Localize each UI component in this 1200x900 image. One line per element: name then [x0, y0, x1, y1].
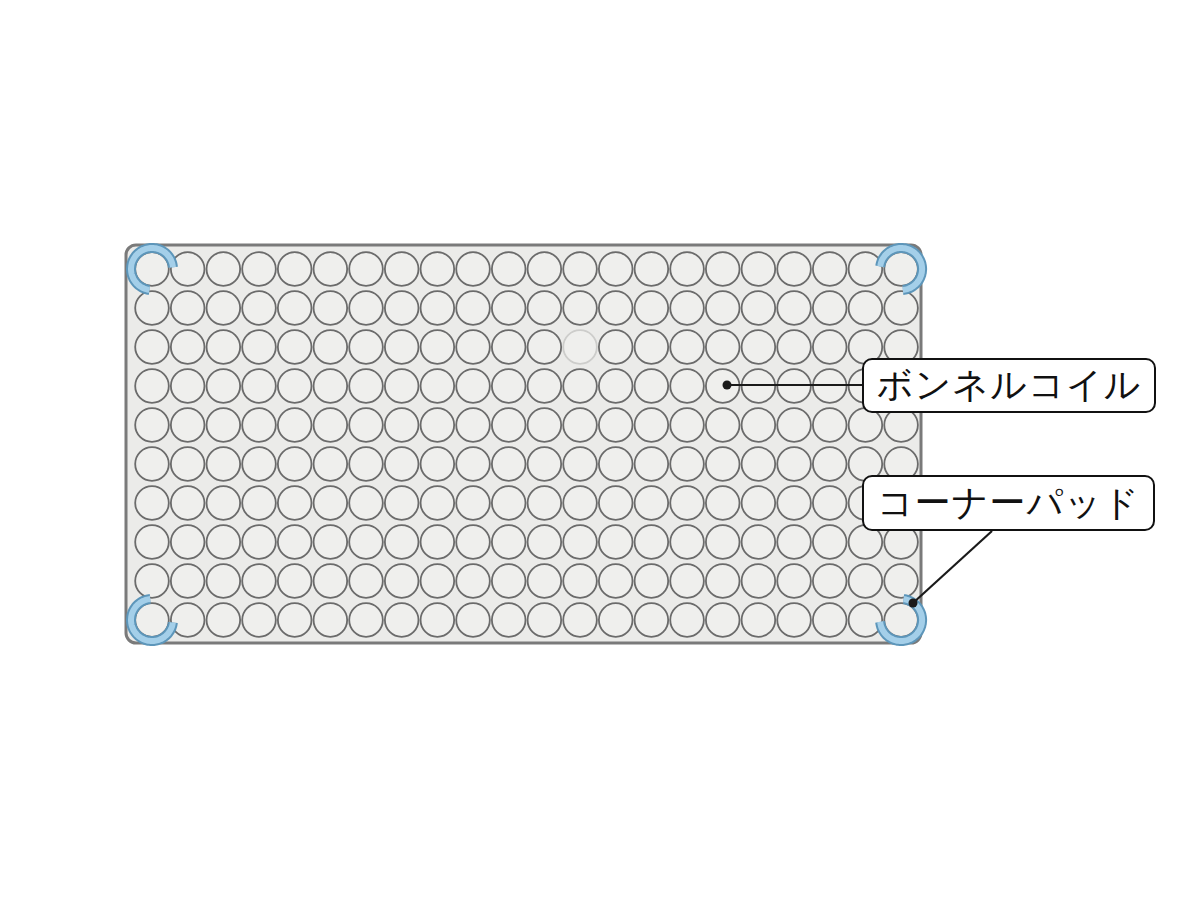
coil	[385, 369, 419, 403]
coil	[385, 408, 419, 442]
coil	[492, 252, 526, 286]
coil	[278, 564, 312, 598]
coil	[742, 369, 776, 403]
coil	[349, 330, 383, 364]
coil	[456, 369, 490, 403]
coil	[135, 291, 169, 325]
coil-faded	[563, 330, 597, 364]
coil	[314, 486, 348, 520]
coil	[635, 291, 669, 325]
coil	[349, 408, 383, 442]
coil	[599, 252, 633, 286]
coil	[385, 447, 419, 481]
coil	[635, 564, 669, 598]
coil	[135, 564, 169, 598]
coil	[813, 330, 847, 364]
coil	[599, 525, 633, 559]
coil	[421, 486, 455, 520]
coil	[171, 408, 205, 442]
coil	[456, 330, 490, 364]
coil	[599, 564, 633, 598]
coil	[777, 486, 811, 520]
coil	[171, 525, 205, 559]
coil	[314, 252, 348, 286]
coil	[742, 408, 776, 442]
coil	[670, 525, 704, 559]
coil	[171, 252, 205, 286]
coil	[635, 603, 669, 637]
coil	[278, 291, 312, 325]
coil	[777, 525, 811, 559]
coil	[884, 291, 918, 325]
coil	[314, 447, 348, 481]
coil	[670, 603, 704, 637]
coil	[135, 447, 169, 481]
coil	[528, 603, 562, 637]
coil	[456, 447, 490, 481]
coil	[456, 486, 490, 520]
coil	[670, 564, 704, 598]
coil	[599, 603, 633, 637]
coil	[207, 291, 241, 325]
coil	[421, 330, 455, 364]
coil	[635, 369, 669, 403]
coil	[813, 603, 847, 637]
coil	[563, 447, 597, 481]
coil	[421, 564, 455, 598]
coil	[421, 525, 455, 559]
coil	[492, 291, 526, 325]
coil	[599, 486, 633, 520]
mattress-coil-diagram	[0, 0, 1200, 900]
coil	[171, 603, 205, 637]
coil	[349, 525, 383, 559]
coil	[207, 330, 241, 364]
coil	[742, 525, 776, 559]
coil	[849, 291, 883, 325]
coil	[777, 369, 811, 403]
coil	[706, 486, 740, 520]
coil	[670, 447, 704, 481]
label-bonnell-coil: ボンネルコイル	[862, 358, 1156, 413]
coil	[742, 603, 776, 637]
coil	[528, 447, 562, 481]
coil	[242, 252, 276, 286]
coil	[171, 330, 205, 364]
coil	[278, 525, 312, 559]
coil	[242, 330, 276, 364]
coil	[670, 252, 704, 286]
label-corner-pad: コーナーパッド	[862, 475, 1155, 531]
coil	[207, 603, 241, 637]
coil	[563, 369, 597, 403]
coil	[777, 408, 811, 442]
coil	[349, 291, 383, 325]
coil	[492, 447, 526, 481]
coil	[421, 369, 455, 403]
coil	[635, 252, 669, 286]
coil	[563, 408, 597, 442]
coil	[813, 447, 847, 481]
coil	[314, 603, 348, 637]
coil	[278, 447, 312, 481]
coil	[492, 369, 526, 403]
coil	[456, 252, 490, 286]
coil	[563, 291, 597, 325]
coil	[813, 369, 847, 403]
coil	[670, 369, 704, 403]
coil	[421, 252, 455, 286]
coil	[314, 369, 348, 403]
coil	[349, 369, 383, 403]
coil	[242, 408, 276, 442]
coil	[742, 291, 776, 325]
coil	[242, 291, 276, 325]
coil	[742, 330, 776, 364]
coil	[742, 564, 776, 598]
coil	[492, 408, 526, 442]
coil	[135, 330, 169, 364]
coil	[492, 330, 526, 364]
coil	[278, 252, 312, 286]
coil	[670, 408, 704, 442]
coil	[385, 330, 419, 364]
coil	[278, 330, 312, 364]
coil	[171, 369, 205, 403]
coil	[492, 603, 526, 637]
coil	[385, 564, 419, 598]
coil	[314, 564, 348, 598]
coil	[528, 525, 562, 559]
coil	[314, 291, 348, 325]
coil	[599, 330, 633, 364]
coil	[563, 252, 597, 286]
coil	[171, 291, 205, 325]
coil	[706, 525, 740, 559]
coil	[742, 252, 776, 286]
coil	[242, 486, 276, 520]
coil	[135, 525, 169, 559]
coil	[456, 408, 490, 442]
coil	[813, 408, 847, 442]
coil	[421, 447, 455, 481]
coil	[635, 525, 669, 559]
coil	[135, 486, 169, 520]
coil	[635, 447, 669, 481]
coil	[242, 525, 276, 559]
coil	[706, 330, 740, 364]
coil	[670, 330, 704, 364]
coil	[884, 408, 918, 442]
coil	[421, 603, 455, 637]
coil	[349, 252, 383, 286]
coil	[813, 486, 847, 520]
coil	[635, 330, 669, 364]
coil	[207, 369, 241, 403]
coil	[563, 564, 597, 598]
coil	[171, 447, 205, 481]
coil	[599, 447, 633, 481]
coil	[706, 252, 740, 286]
coil	[207, 486, 241, 520]
coil	[421, 408, 455, 442]
coil	[849, 564, 883, 598]
coil	[207, 252, 241, 286]
coil	[314, 408, 348, 442]
coil	[207, 408, 241, 442]
coil	[884, 564, 918, 598]
coil	[528, 369, 562, 403]
coil	[777, 252, 811, 286]
coil	[599, 408, 633, 442]
coil	[385, 486, 419, 520]
coil	[278, 408, 312, 442]
coil	[706, 564, 740, 598]
coil	[135, 369, 169, 403]
coil	[456, 564, 490, 598]
coil	[421, 291, 455, 325]
coil	[777, 447, 811, 481]
coil	[278, 603, 312, 637]
coil	[849, 408, 883, 442]
coil	[207, 525, 241, 559]
coil	[207, 447, 241, 481]
coil	[777, 603, 811, 637]
coil	[849, 252, 883, 286]
coil	[456, 603, 490, 637]
coil	[742, 486, 776, 520]
leader-dot-bonnell-coil	[723, 381, 732, 390]
coil	[670, 486, 704, 520]
coil	[492, 525, 526, 559]
coil	[849, 603, 883, 637]
diagram-stage: ボンネルコイル コーナーパッド	[0, 0, 1200, 900]
coil	[314, 525, 348, 559]
coil	[777, 564, 811, 598]
coil	[670, 291, 704, 325]
coil	[349, 603, 383, 637]
coil	[706, 603, 740, 637]
coil	[456, 525, 490, 559]
coil	[813, 525, 847, 559]
coil	[528, 291, 562, 325]
coil	[385, 525, 419, 559]
coil	[492, 564, 526, 598]
leader-dot-corner-pad	[909, 599, 918, 608]
coil	[635, 486, 669, 520]
coil	[171, 564, 205, 598]
coil	[492, 486, 526, 520]
coil	[528, 564, 562, 598]
coil	[314, 330, 348, 364]
coil	[242, 447, 276, 481]
coil	[563, 603, 597, 637]
coil	[706, 291, 740, 325]
coil	[813, 564, 847, 598]
coil	[813, 291, 847, 325]
coil	[777, 291, 811, 325]
coil	[635, 408, 669, 442]
coil	[242, 369, 276, 403]
coil	[563, 525, 597, 559]
coil	[456, 291, 490, 325]
coil	[813, 252, 847, 286]
coil	[349, 564, 383, 598]
coil	[706, 408, 740, 442]
coil	[528, 252, 562, 286]
coil	[349, 486, 383, 520]
coil	[599, 291, 633, 325]
coil	[599, 369, 633, 403]
coil	[349, 447, 383, 481]
coil	[385, 603, 419, 637]
coil	[171, 486, 205, 520]
coil	[207, 564, 241, 598]
coil	[135, 408, 169, 442]
coil	[706, 447, 740, 481]
coil	[242, 603, 276, 637]
coil	[385, 291, 419, 325]
coil	[742, 447, 776, 481]
leader-line-corner-pad	[913, 531, 992, 603]
coil	[242, 564, 276, 598]
coil	[528, 330, 562, 364]
coil	[563, 486, 597, 520]
coil	[385, 252, 419, 286]
coil	[528, 408, 562, 442]
coil	[777, 330, 811, 364]
coil	[278, 486, 312, 520]
coil	[278, 369, 312, 403]
coil	[528, 486, 562, 520]
